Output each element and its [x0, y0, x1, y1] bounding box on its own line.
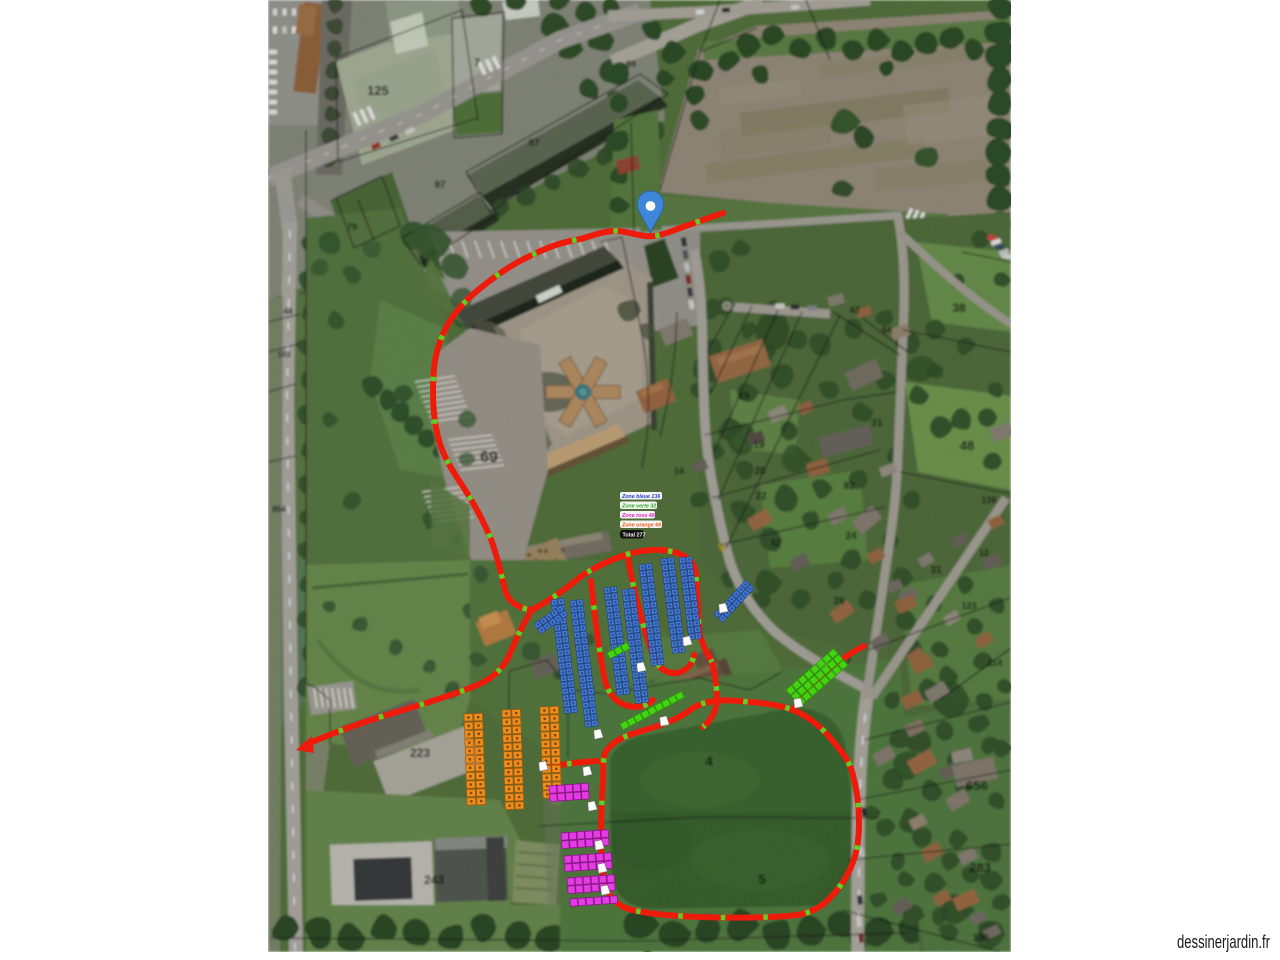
svg-text:Zone verte 32: Zone verte 32 [621, 504, 656, 510]
svg-text:Zone orange 66: Zone orange 66 [621, 523, 661, 529]
svg-text:Total 277: Total 277 [623, 533, 646, 539]
svg-text:Zone rose 48: Zone rose 48 [621, 513, 655, 519]
svg-text:dessinerjardin.fr: dessinerjardin.fr [1177, 932, 1270, 952]
svg-text:Zone bleue 136: Zone bleue 136 [621, 494, 660, 500]
